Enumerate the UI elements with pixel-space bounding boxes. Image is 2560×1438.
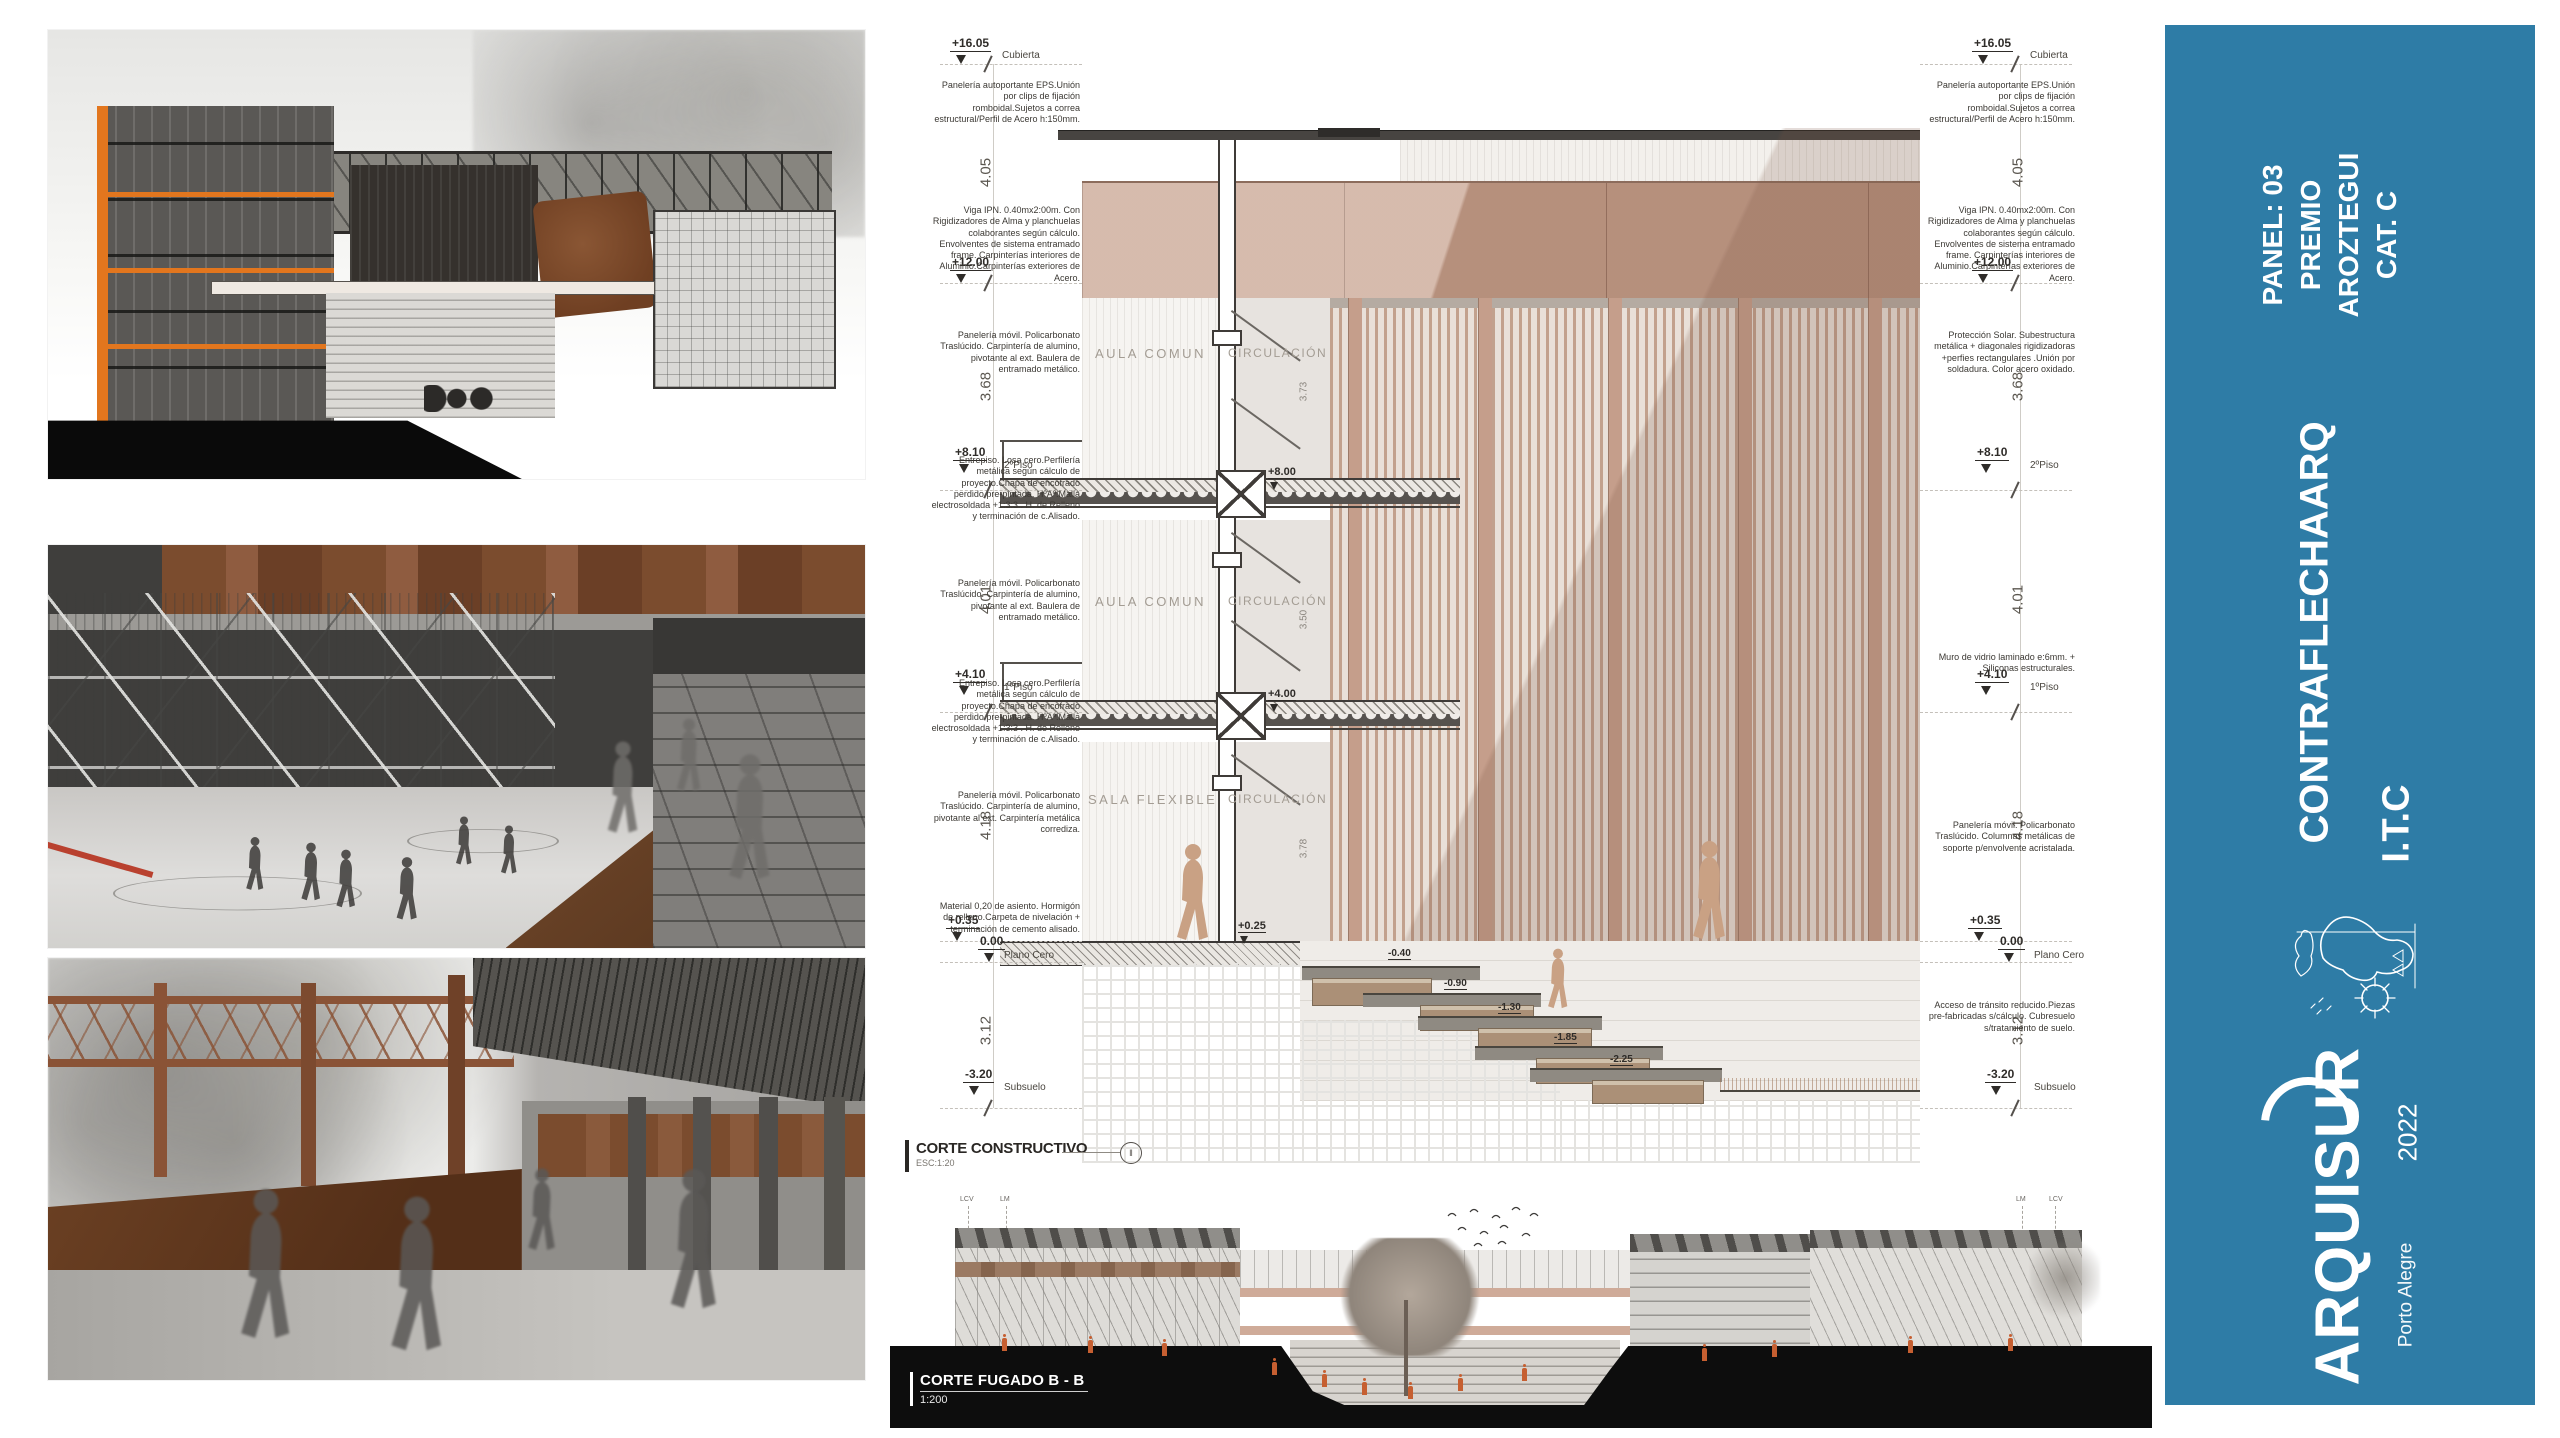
annotation: Muro de vidrio laminado e:6mm. + Silicon… bbox=[1925, 652, 2075, 675]
logo-city-text: Porto Alegre bbox=[2395, 1243, 2417, 1348]
fugado-block-right bbox=[1630, 1252, 1810, 1358]
grid-mark: LM bbox=[2016, 1196, 2026, 1203]
circ-zone-2 bbox=[1232, 298, 1330, 478]
step-level: -0.90 bbox=[1444, 978, 1467, 990]
subsoil-weave-left bbox=[1082, 963, 1302, 1163]
fugado-title-bar bbox=[910, 1372, 913, 1406]
orange-figure bbox=[1322, 1374, 1327, 1387]
column-splice-3 bbox=[1212, 775, 1242, 791]
level-name: Cubierta bbox=[1002, 50, 1040, 61]
lvl-line bbox=[1920, 1108, 2072, 1109]
annotation: Viga IPN. 0.40mx2:00m. Con Rigidizadores… bbox=[930, 205, 1080, 284]
orange-figure bbox=[1162, 1343, 1167, 1356]
subsoil-weave-right bbox=[1560, 1100, 1920, 1163]
level-marker-icon bbox=[969, 1086, 979, 1095]
fugado-tree-right bbox=[2030, 1240, 2100, 1325]
elevator-box-2 bbox=[1216, 470, 1266, 518]
annotation: Panelería autoportante EPS.Unión por cli… bbox=[930, 80, 1080, 125]
lvl-line bbox=[1920, 962, 2072, 963]
side-banner: PANEL: 03 PREMIO AROZTEGUI CAT. C CONTRA… bbox=[2165, 25, 2535, 1405]
dark-screen-box bbox=[350, 165, 538, 291]
level-marker-icon bbox=[1270, 704, 1278, 712]
banner-logo-city: Porto Alegre bbox=[2391, 1215, 2421, 1375]
banner-aroztegui-line: AROZTEGUI bbox=[2330, 140, 2368, 330]
annotation: Panelería móvil. Policarbonato Traslúcid… bbox=[1925, 820, 2075, 854]
pedestrian-figures bbox=[195, 1135, 835, 1375]
team-name-text: CONTRAFLECHAARQ bbox=[2293, 513, 2338, 843]
dim-interior: 3.73 bbox=[1299, 372, 1310, 412]
room-label-circ-0: CIRCULACIÓN bbox=[1228, 792, 1327, 806]
level-name: Subsuelo bbox=[2034, 1082, 2076, 1093]
level-marker-icon bbox=[1270, 482, 1278, 490]
lvl-line bbox=[1920, 64, 2072, 65]
shadow-overlay bbox=[1340, 128, 1920, 941]
balcony-railtop-1 bbox=[1000, 662, 1082, 664]
orange-figure bbox=[1362, 1382, 1367, 1395]
annotation: Panelería móvil. Policarbonato Traslúcid… bbox=[930, 790, 1080, 835]
circ-zone-1 bbox=[1232, 520, 1330, 700]
figure-screen bbox=[1686, 840, 1733, 942]
lvl-line bbox=[940, 1108, 1082, 1109]
figure-child bbox=[1543, 948, 1573, 1010]
dim-interior: 3.50 bbox=[1299, 600, 1310, 640]
corten-truss-beam-bottom bbox=[48, 1059, 514, 1067]
level-name: Subsuelo bbox=[1004, 1082, 1046, 1093]
banner-logo: ARQUISUR bbox=[2283, 1075, 2393, 1385]
lower-ground-line bbox=[1720, 1090, 1920, 1092]
orange-figure bbox=[1458, 1378, 1463, 1391]
orange-cut-slab-2 bbox=[97, 268, 334, 273]
render-section-perspective bbox=[48, 30, 865, 479]
corten-truss-diagonals bbox=[48, 1004, 514, 1059]
south-america-map-icon bbox=[2283, 883, 2428, 1028]
level-marker-icon bbox=[1991, 1086, 2001, 1095]
courtyard-figures bbox=[424, 385, 506, 412]
corten-truss-beam-top bbox=[48, 996, 514, 1004]
team-sub-text: I.T.C bbox=[2376, 784, 2419, 862]
column-splice-1 bbox=[1212, 330, 1242, 346]
room-label-sala: SALA FLEXIBLE bbox=[1088, 792, 1217, 807]
fugado-title-rule bbox=[920, 1391, 1088, 1392]
grid-mark: LCV bbox=[2049, 1196, 2063, 1203]
dim-storey: 4.05 bbox=[2010, 143, 2027, 203]
title-rule bbox=[1062, 1152, 1120, 1153]
level-label: +0.35 bbox=[1968, 913, 2002, 929]
glass-grid-wall bbox=[653, 210, 837, 389]
level-name: 2ºPiso bbox=[2030, 460, 2059, 471]
level-label: +8.10 bbox=[1975, 445, 2009, 461]
fugado-tree bbox=[1335, 1238, 1485, 1356]
orange-cut-slab-3 bbox=[97, 344, 334, 349]
central-column bbox=[1218, 140, 1236, 941]
orange-figure bbox=[1088, 1340, 1093, 1353]
dim-interior: 3.78 bbox=[1299, 829, 1310, 869]
banner-team-name: CONTRAFLECHAARQ bbox=[2287, 513, 2343, 843]
level-name: 1ºPiso bbox=[2030, 682, 2059, 693]
lvl-line bbox=[1920, 490, 2072, 491]
balcony-railtop-2 bbox=[1000, 440, 1082, 442]
level-marker-icon bbox=[1974, 932, 1984, 941]
children-figures bbox=[244, 795, 584, 925]
banner-premio-line: PREMIO bbox=[2292, 140, 2330, 330]
section-scale: ESC:1:20 bbox=[916, 1158, 955, 1168]
lvl-line bbox=[940, 64, 1082, 65]
step-planter-5 bbox=[1592, 1080, 1704, 1104]
fugado-roof-right bbox=[1630, 1234, 1810, 1252]
room-label-circ-1: CIRCULACIÓN bbox=[1228, 594, 1327, 608]
annotation: Panelería móvil. Policarbonato Traslúcid… bbox=[930, 578, 1080, 623]
level-name: Plano Cero bbox=[2034, 950, 2084, 961]
title-bar bbox=[905, 1140, 909, 1172]
level-marker-icon bbox=[1981, 464, 1991, 473]
annotation: Entrepiso. Losa cero.Perfilería metálica… bbox=[930, 455, 1080, 523]
section-tower bbox=[97, 106, 334, 425]
section-title: CORTE CONSTRUCTIVO bbox=[916, 1140, 1087, 1157]
level-marker-icon bbox=[2004, 953, 2014, 962]
dim-storey: 4.05 bbox=[978, 143, 995, 203]
annotation: Protección Solar. Subestructura metálica… bbox=[1925, 330, 2075, 375]
inner-level: +8.00 bbox=[1268, 466, 1296, 479]
level-label: -3.20 bbox=[1985, 1067, 2016, 1083]
elevator-box-1 bbox=[1216, 692, 1266, 740]
dim-storey: 4.01 bbox=[2010, 570, 2027, 630]
level-name: Cubierta bbox=[2030, 50, 2068, 61]
orange-figure bbox=[1522, 1368, 1527, 1381]
step-level: -1.85 bbox=[1554, 1032, 1577, 1044]
title-marker-icon: ‖ bbox=[1120, 1142, 1142, 1164]
walking-figures bbox=[604, 698, 834, 948]
render-corridor-exterior bbox=[48, 958, 865, 1380]
panel-board: +16.05 Cubierta +12.00 +8.10 2ºPiso +4.1… bbox=[0, 0, 2560, 1438]
level-name: Plano Cero bbox=[1004, 950, 1054, 961]
lvl-line bbox=[940, 941, 1082, 942]
level-marker-icon bbox=[1981, 686, 1991, 695]
step-level: -1.30 bbox=[1498, 1002, 1521, 1014]
fugado-title: CORTE FUGADO B - B bbox=[920, 1372, 1084, 1389]
upper-opening bbox=[653, 618, 865, 674]
banner-panel-line: PANEL: 03 bbox=[2254, 140, 2292, 330]
banner-logo-year: 2022 bbox=[2391, 1077, 2425, 1187]
level-marker-icon bbox=[984, 953, 994, 962]
annotation: Panelería móvil. Policarbonato Traslúcid… bbox=[930, 330, 1080, 375]
level-marker-icon bbox=[956, 55, 966, 64]
step-level: -2.25 bbox=[1610, 1054, 1633, 1066]
level-label: 0.00 bbox=[978, 934, 1005, 950]
banner-team-sub: I.T.C bbox=[2373, 763, 2421, 883]
circ-zone-0 bbox=[1232, 742, 1330, 941]
orange-figure bbox=[1408, 1386, 1413, 1399]
grid-mark: LCV bbox=[960, 1196, 974, 1203]
fugado-roof-left bbox=[955, 1228, 1240, 1248]
logo-year-text: 2022 bbox=[2393, 1103, 2424, 1161]
aula-zone-1 bbox=[1082, 520, 1218, 700]
room-label-circ-2: CIRCULACIÓN bbox=[1228, 346, 1327, 360]
orange-figure bbox=[1272, 1362, 1277, 1375]
fugado-scale: 1:200 bbox=[920, 1394, 948, 1406]
banner-category-line: CAT. C bbox=[2368, 140, 2406, 330]
fugado-tree-trunk bbox=[1404, 1300, 1408, 1396]
aula-zone-2 bbox=[1082, 298, 1218, 478]
orange-figure bbox=[1002, 1338, 1007, 1351]
annotation: Viga IPN. 0.40mx2:00m. Con Rigidizadores… bbox=[1925, 205, 2075, 284]
figure-sala bbox=[1170, 843, 1216, 943]
orange-figure bbox=[1908, 1340, 1913, 1353]
dim-storey: 3.12 bbox=[978, 1001, 995, 1061]
banner-panel-group: PANEL: 03 PREMIO AROZTEGUI CAT. C bbox=[2235, 85, 2425, 385]
annotation: Entrepiso. Losa cero.Perfilería metálica… bbox=[930, 678, 1080, 746]
inner-level: +0.25 bbox=[1238, 920, 1266, 933]
orange-figure bbox=[1702, 1348, 1707, 1361]
orange-cut-slab-1 bbox=[97, 192, 334, 197]
level-marker-icon bbox=[1240, 936, 1248, 944]
lower-ground-grass bbox=[1720, 1078, 1920, 1090]
annotation: Material 0,20 de asiento. Hormigón de re… bbox=[930, 901, 1080, 935]
level-label: -3.20 bbox=[963, 1067, 994, 1083]
room-label-aula-1: AULA COMUN bbox=[1095, 594, 1206, 609]
logo-text: ARQUISUR bbox=[2303, 1075, 2374, 1385]
room-label-aula-2: AULA COMUN bbox=[1095, 346, 1206, 361]
inner-level: +4.00 bbox=[1268, 688, 1296, 701]
grid-mark: LM bbox=[1000, 1196, 1010, 1203]
step-level: -0.40 bbox=[1388, 948, 1411, 960]
render-gym-interior bbox=[48, 545, 865, 948]
column-splice-2 bbox=[1212, 552, 1242, 568]
corten-post-1 bbox=[154, 983, 167, 1177]
fugado-corten-left bbox=[955, 1262, 1240, 1277]
level-label: +16.05 bbox=[950, 36, 991, 52]
orange-figure bbox=[2008, 1338, 2013, 1351]
level-label: +16.05 bbox=[1972, 36, 2013, 52]
level-marker-icon bbox=[1978, 55, 1988, 64]
annotation: Acceso de tránsito reducido.Piezas pre-f… bbox=[1925, 1000, 2075, 1034]
annotation: Panelería autoportante EPS.Unión por cli… bbox=[1925, 80, 2075, 125]
orange-figure bbox=[1772, 1344, 1777, 1357]
lvl-line bbox=[940, 962, 1082, 963]
lvl-line bbox=[1920, 712, 2072, 713]
lvl-line bbox=[1920, 941, 2072, 942]
level-label: 0.00 bbox=[1998, 934, 2025, 950]
orange-cut-column bbox=[97, 106, 108, 425]
